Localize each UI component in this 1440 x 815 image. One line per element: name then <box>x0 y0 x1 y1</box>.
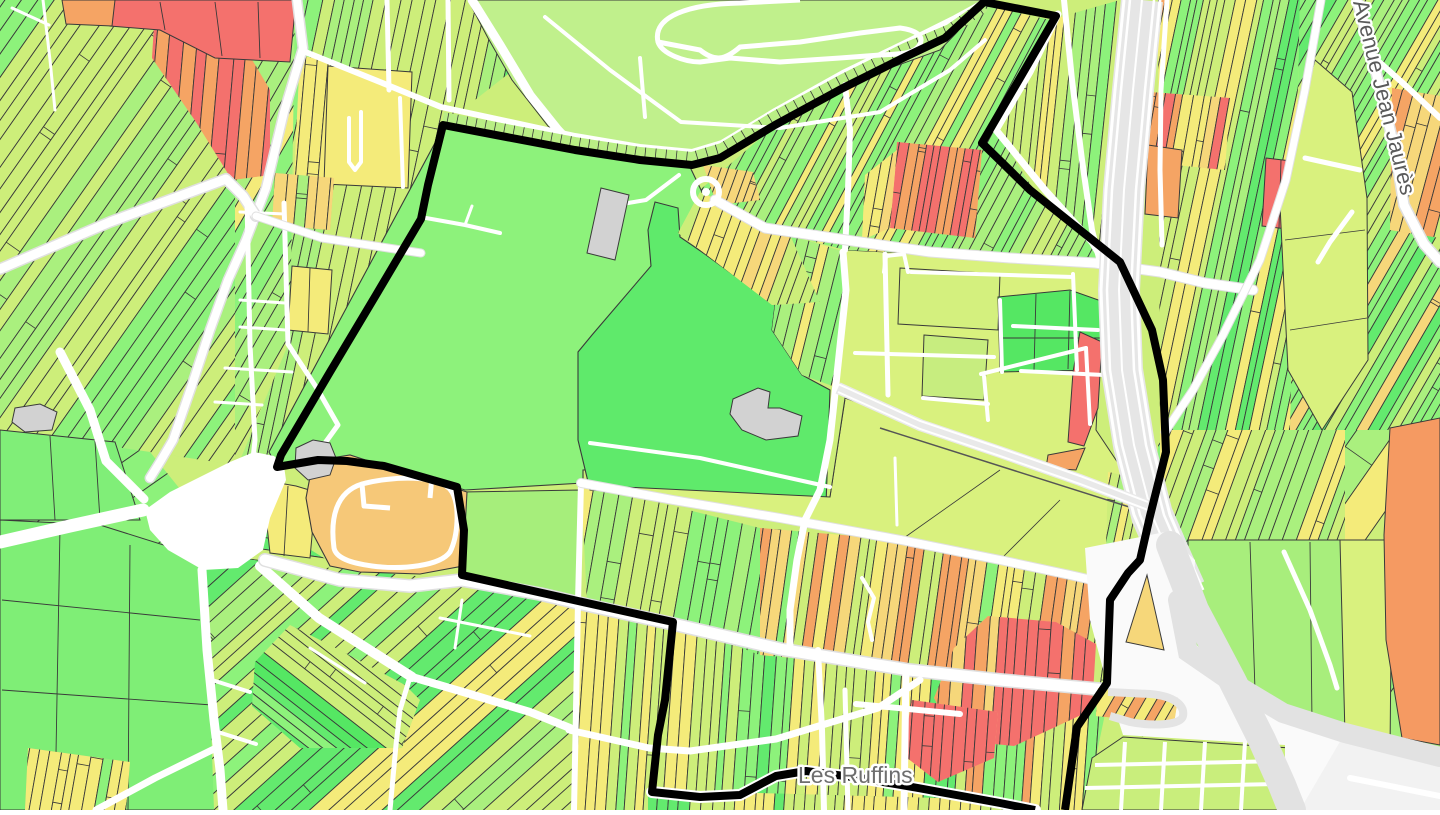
svg-text:Les Ruffins: Les Ruffins <box>798 762 913 788</box>
